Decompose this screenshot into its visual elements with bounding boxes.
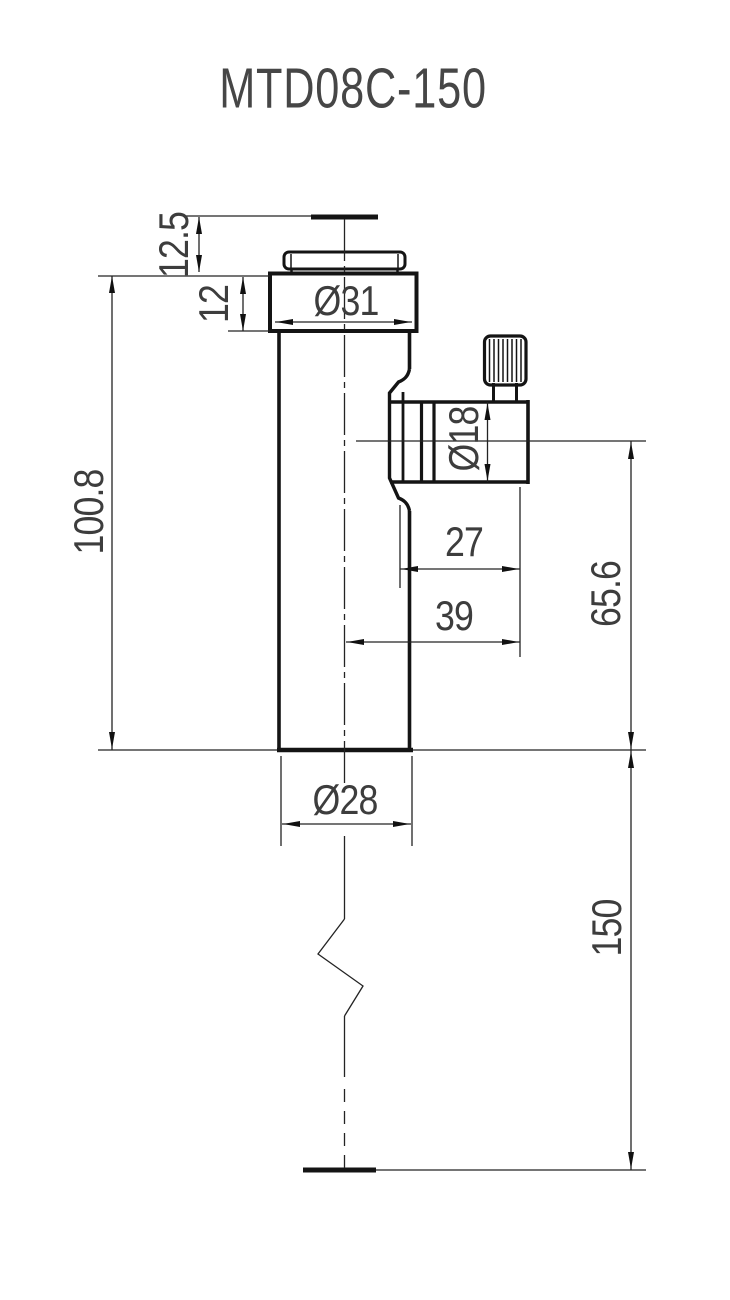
dimension-arrowheads	[109, 217, 634, 1169]
dim-label-clamp-diameter: Ø18	[443, 407, 485, 472]
dim-label-body-diameter: Ø28	[313, 779, 378, 821]
dim-label-body-length: 100.8	[68, 469, 110, 554]
extension-lines	[98, 216, 646, 1170]
dim-label-post-length: 150	[586, 899, 628, 956]
dim-label-clamp-axis-to-body-end: 65.6	[585, 561, 627, 627]
dim-label-top-plate-to-cap: 12.5	[153, 212, 195, 278]
boss-relief-profile	[390, 369, 410, 511]
dimension-lines	[112, 217, 631, 1170]
knurled-knob	[485, 336, 527, 385]
drawing-geometry	[0, 0, 730, 1300]
dim-label-clamp-face-to-axis: 39	[435, 595, 473, 637]
centerlines	[318, 219, 646, 1170]
part-number-title: MTD08C-150	[219, 61, 487, 118]
dim-label-cap-diameter: Ø31	[314, 280, 379, 322]
break-line-zigzag	[318, 919, 363, 1016]
technical-drawing-canvas: MTD08C-150 12.5 12 Ø31 100.8 Ø18 27 39 6…	[0, 0, 730, 1300]
dim-label-cap-height: 12	[193, 285, 235, 323]
dim-label-clamp-face-to-relief: 27	[445, 521, 483, 563]
part-outline	[270, 217, 528, 1170]
